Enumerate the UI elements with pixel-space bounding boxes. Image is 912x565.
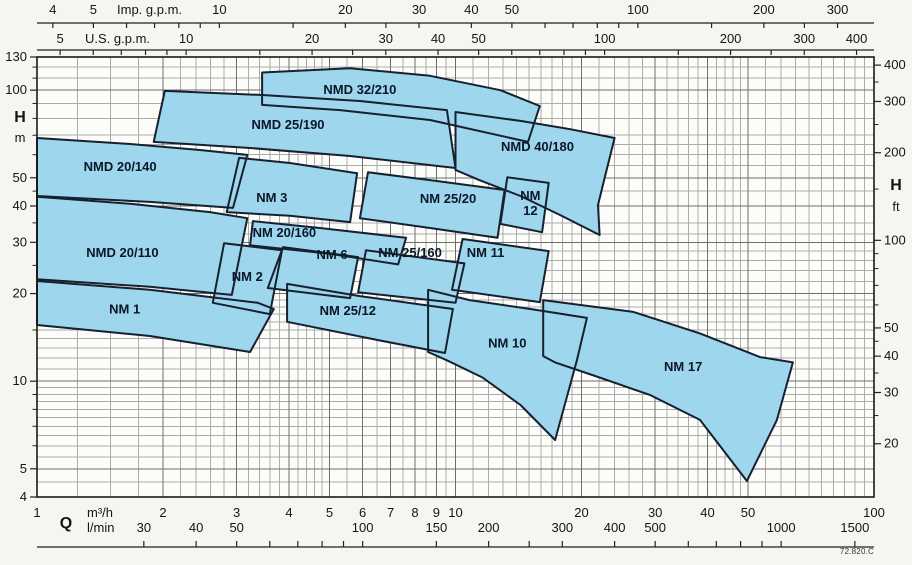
- axis-tick-label: 100: [594, 31, 616, 46]
- axis-tick-label: 1500: [840, 520, 869, 535]
- region-label-nm-20-160: NM 20/160: [253, 225, 317, 240]
- axis-tick-label: 40: [464, 2, 478, 17]
- axis-tick-label: 5: [56, 31, 63, 46]
- region-label-nm-10: NM 10: [488, 335, 526, 350]
- axis-tick-label: 3: [233, 505, 240, 520]
- axis-tick-label: 100: [627, 2, 649, 17]
- axis-tick-label: 200: [720, 31, 742, 46]
- region-label-nmd-20-110: NMD 20/110: [86, 245, 158, 260]
- region-label-nmd-40-180: NMD 40/180: [501, 139, 574, 154]
- axis-unit-m3h: m³/h: [87, 505, 113, 520]
- axis-tick-label: 200: [753, 2, 775, 17]
- axis-tick-label: 5: [90, 2, 97, 17]
- region-label-nm-25-20: NM 25/20: [420, 191, 476, 206]
- axis-tick-label: 300: [551, 520, 573, 535]
- axis-tick-label: 20: [305, 31, 319, 46]
- axis-tick-label: 50: [13, 170, 27, 185]
- axis-tick-label: 40: [884, 348, 898, 363]
- axis-tick-label: 30: [884, 384, 898, 399]
- axis-tick-label: 1: [33, 505, 40, 520]
- axis-tick-label: 300: [884, 93, 906, 108]
- axis-top-us-gpm: 51020304050100200300400U.S. g.p.m.: [37, 31, 874, 55]
- axis-tick-label: 150: [425, 520, 447, 535]
- axis-tick-label: 4: [20, 489, 27, 504]
- axis-tick-label: 6: [359, 505, 366, 520]
- axis-tick-label: 400: [604, 520, 626, 535]
- axis-tick-label: 5: [326, 505, 333, 520]
- axis-tick-label: 10: [13, 373, 27, 388]
- axis-tick-label: 300: [793, 31, 815, 46]
- region-label-nm-12: 12: [523, 203, 537, 218]
- axis-tick-label: 1000: [767, 520, 796, 535]
- axis-tick-label: 4: [49, 2, 56, 17]
- axis-tick-label: 2: [159, 505, 166, 520]
- axis-tick-label: 5: [20, 461, 27, 476]
- region-label-nm-2: NM 2: [232, 269, 263, 284]
- axis-tick-label: 30: [137, 520, 151, 535]
- axis-tick-label: 130: [5, 49, 27, 64]
- axis-tick-label: 50: [884, 320, 898, 335]
- axis-tick-label: 100: [352, 520, 374, 535]
- axis-tick-label: 30: [412, 2, 426, 17]
- axis-tick-label: 40: [189, 520, 203, 535]
- axis-unit-m: m: [15, 130, 26, 145]
- axis-tick-label: 50: [741, 505, 755, 520]
- axis-title-imp-gpm: Imp. g.p.m.: [117, 2, 182, 17]
- pump-selection-chart: NMD 20/140NMD 25/190NMD 32/210NMD 40/180…: [0, 0, 912, 560]
- axis-tick-label: 100: [5, 82, 27, 97]
- axis-tick-label: 500: [644, 520, 666, 535]
- axis-tick-label: 30: [379, 31, 393, 46]
- region-label-nmd-20-140: NMD 20/140: [84, 159, 157, 174]
- axis-tick-label: 300: [827, 2, 849, 17]
- axis-tick-label: 20: [884, 436, 898, 451]
- axis-tick-label: 40: [700, 505, 714, 520]
- axis-tick-label: 400: [884, 57, 906, 72]
- region-label-nmd-32-210: NMD 32/210: [323, 82, 396, 97]
- region-label-nm-25-160: NM 25/160: [378, 245, 442, 260]
- axis-tick-label: 50: [505, 2, 519, 17]
- axis-tick-label: 4: [285, 505, 292, 520]
- axis-tick-label: 200: [478, 520, 500, 535]
- axis-unit-lmin: l/min: [87, 520, 114, 535]
- axis-title-us-gpm: U.S. g.p.m.: [85, 31, 150, 46]
- axis-tick-label: 100: [863, 505, 885, 520]
- axis-tick-label: 40: [13, 198, 27, 213]
- axis-tick-label: 7: [387, 505, 394, 520]
- axis-tick-label: 50: [229, 520, 243, 535]
- axis-tick-label: 8: [411, 505, 418, 520]
- axis-top-imp-gpm: 451020304050100200300Imp. g.p.m.: [37, 2, 874, 28]
- axis-bottom-q: 1234567891020304050100304050100150200300…: [33, 505, 884, 547]
- axis-symbol-q: Q: [60, 515, 72, 532]
- region-label-nm-1: NM 1: [109, 302, 140, 317]
- axis-tick-label: 100: [884, 232, 906, 247]
- region-label-nm-25-12: NM 25/12: [320, 303, 376, 318]
- region-label-nm-17: NM 17: [664, 359, 702, 374]
- axis-unit-ft: ft: [892, 199, 900, 214]
- region-label-nm-3: NM 3: [256, 190, 287, 205]
- region-label-nm-6: NM 6: [317, 247, 348, 262]
- axis-tick-label: 10: [448, 505, 462, 520]
- region-label-nm-12: NM: [520, 188, 540, 203]
- axis-tick-label: 20: [574, 505, 588, 520]
- pump-chart-svg: NMD 20/140NMD 25/190NMD 32/210NMD 40/180…: [0, 0, 912, 560]
- region-label-nm-11: NM 11: [467, 245, 505, 260]
- axis-tick-label: 20: [338, 2, 352, 17]
- axis-tick-label: 10: [212, 2, 226, 17]
- axis-symbol-h-right: H: [890, 177, 902, 194]
- axis-symbol-h-left: H: [14, 109, 26, 126]
- axis-right-h-ft: 40030020010050403020Hft: [874, 57, 906, 451]
- region-label-nmd-25-190: NMD 25/190: [252, 117, 325, 132]
- axis-tick-label: 400: [846, 31, 868, 46]
- axis-tick-label: 9: [433, 505, 440, 520]
- axis-tick-label: 30: [648, 505, 662, 520]
- axis-tick-label: 20: [13, 286, 27, 301]
- axis-tick-label: 40: [431, 31, 445, 46]
- axis-tick-label: 200: [884, 145, 906, 160]
- axis-tick-label: 50: [471, 31, 485, 46]
- drawing-code: 72.820.C: [840, 547, 874, 556]
- axis-left-h-m: 130100504030201054Hm: [5, 49, 37, 504]
- axis-tick-label: 10: [179, 31, 193, 46]
- axis-tick-label: 30: [13, 234, 27, 249]
